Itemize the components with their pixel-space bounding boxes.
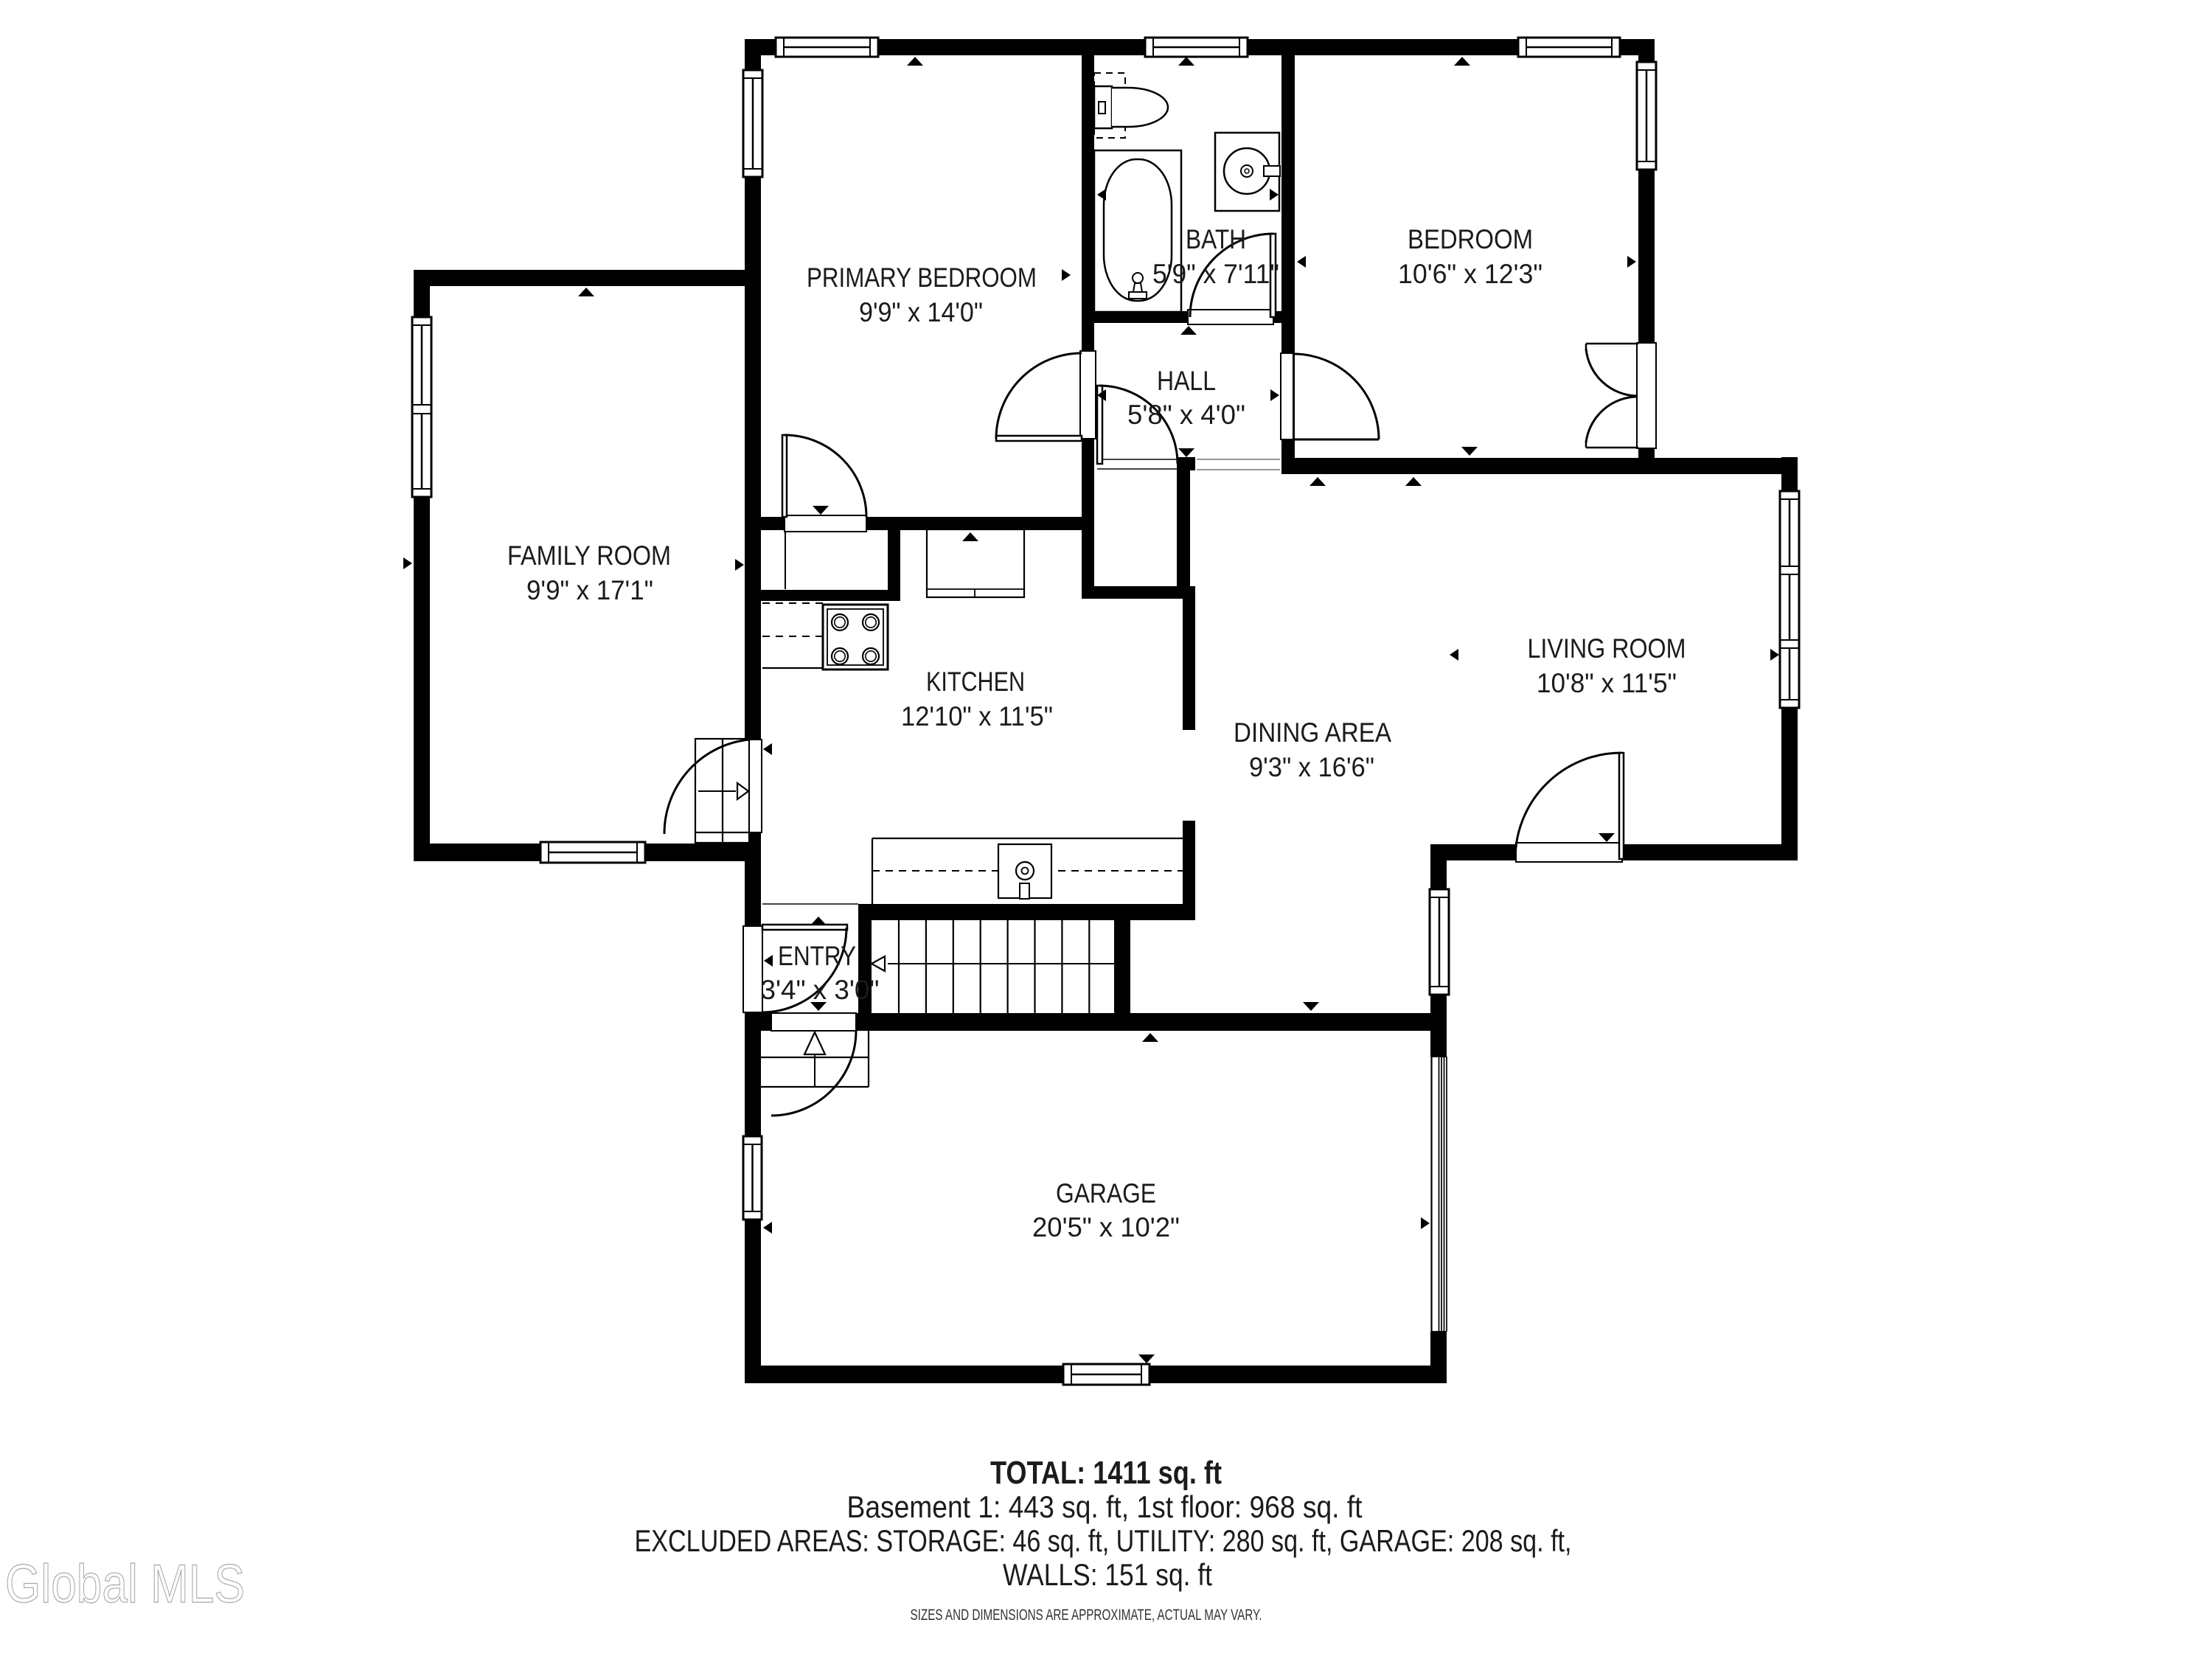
svg-text:GARAGE: GARAGE [1056, 1178, 1156, 1208]
svg-text:10'8" x 11'5": 10'8" x 11'5" [1537, 668, 1677, 698]
svg-text:TOTAL: 1411 sq. ft: TOTAL: 1411 sq. ft [990, 1455, 1222, 1491]
svg-text:5'9" x 7'11": 5'9" x 7'11" [1152, 259, 1279, 289]
svg-text:DINING AREA: DINING AREA [1234, 717, 1391, 748]
svg-text:ENTRY: ENTRY [778, 941, 856, 971]
svg-text:10'6" x 12'3": 10'6" x 12'3" [1398, 259, 1543, 289]
svg-text:9'9" x 17'1": 9'9" x 17'1" [526, 575, 653, 605]
svg-text:SIZES AND DIMENSIONS ARE APPRO: SIZES AND DIMENSIONS ARE APPROXIMATE, AC… [911, 1607, 1262, 1624]
svg-text:Global MLS: Global MLS [5, 1554, 245, 1614]
svg-text:20'5" x 10'2": 20'5" x 10'2" [1032, 1212, 1180, 1242]
svg-text:Basement 1: 443 sq. ft, 1st fl: Basement 1: 443 sq. ft, 1st floor: 968 s… [847, 1489, 1363, 1524]
svg-text:BEDROOM: BEDROOM [1408, 224, 1533, 254]
svg-text:FAMILY ROOM: FAMILY ROOM [507, 540, 671, 571]
svg-text:BATH: BATH [1186, 224, 1246, 254]
svg-text:9'3" x 16'6": 9'3" x 16'6" [1249, 752, 1374, 782]
svg-text:KITCHEN: KITCHEN [926, 667, 1025, 697]
svg-text:3'4" x 3'0": 3'4" x 3'0" [761, 975, 880, 1005]
svg-text:12'10" x 11'5": 12'10" x 11'5" [901, 701, 1053, 731]
svg-text:EXCLUDED AREAS: STORAGE: 46 sq: EXCLUDED AREAS: STORAGE: 46 sq. ft, UTIL… [635, 1523, 1572, 1558]
svg-text:HALL: HALL [1157, 366, 1216, 396]
svg-text:9'9" x 14'0": 9'9" x 14'0" [859, 297, 983, 327]
svg-text:5'8" x 4'0": 5'8" x 4'0" [1127, 400, 1245, 430]
svg-text:PRIMARY BEDROOM: PRIMARY BEDROOM [807, 262, 1037, 293]
svg-text:WALLS: 151 sq. ft: WALLS: 151 sq. ft [1003, 1557, 1212, 1592]
svg-text:LIVING ROOM: LIVING ROOM [1528, 633, 1686, 664]
